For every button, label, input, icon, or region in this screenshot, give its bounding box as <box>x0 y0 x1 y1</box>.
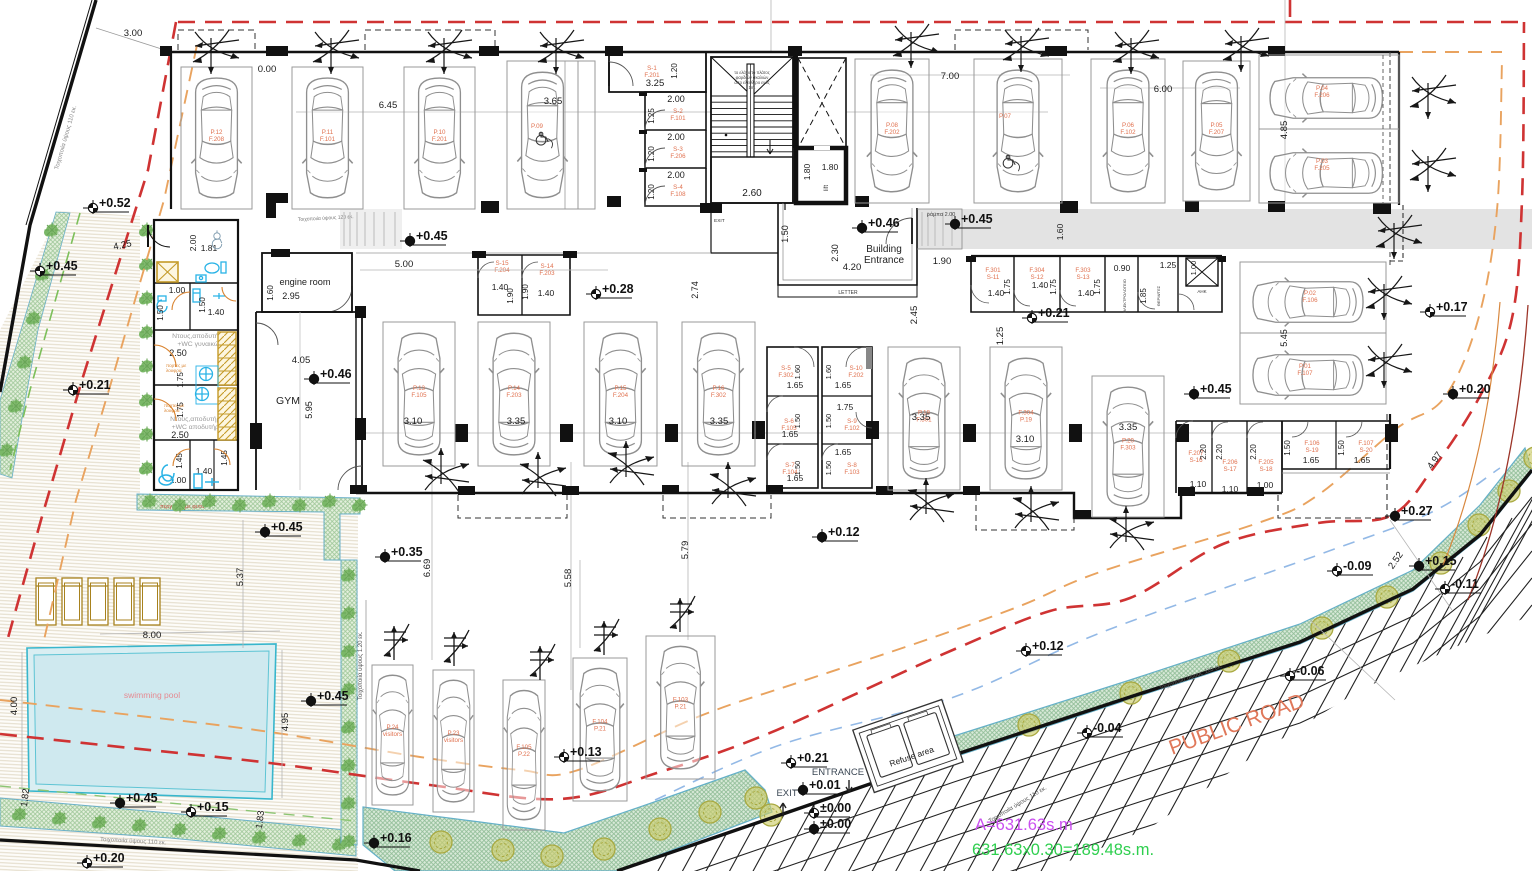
svg-text:P.10: P.10 <box>434 129 446 136</box>
svg-text:-0.06: -0.06 <box>1296 664 1325 678</box>
svg-text:1.25: 1.25 <box>995 327 1006 346</box>
svg-text:1.10: 1.10 <box>1190 479 1207 489</box>
svg-text:S-1: S-1 <box>647 65 657 72</box>
svg-text:1.45: 1.45 <box>220 450 229 466</box>
svg-text:S-10: S-10 <box>849 365 863 372</box>
svg-text:ΗΛΕΚΤΡΟΛΟΓΕΙΟ: ΗΛΕΚΤΡΟΛΟΓΕΙΟ <box>1122 279 1127 313</box>
svg-text:P.21: P.21 <box>594 726 606 733</box>
svg-text:1.50: 1.50 <box>1337 440 1346 456</box>
svg-text:F.106: F.106 <box>1304 440 1320 447</box>
svg-text:S-4: S-4 <box>673 184 683 191</box>
svg-text:F.103: F.103 <box>673 697 689 704</box>
svg-text:1.50: 1.50 <box>780 225 790 243</box>
svg-text:engine room: engine room <box>279 277 330 287</box>
svg-text:+0.01: +0.01 <box>809 778 841 792</box>
svg-text:1.75: 1.75 <box>1093 279 1102 295</box>
svg-text:S-9: S-9 <box>847 418 857 425</box>
svg-text:2.00: 2.00 <box>667 132 685 142</box>
svg-text:F.205: F.205 <box>1314 165 1330 172</box>
svg-text:631.63x0.30=189.48s.m.: 631.63x0.30=189.48s.m. <box>972 841 1154 859</box>
svg-text:2.50: 2.50 <box>169 348 187 358</box>
svg-text:5.95: 5.95 <box>304 401 314 419</box>
svg-text:P.04: P.04 <box>1316 85 1328 92</box>
svg-text:6.69: 6.69 <box>422 559 433 578</box>
svg-text:2.45: 2.45 <box>909 306 920 325</box>
svg-text:+0.15: +0.15 <box>197 800 229 814</box>
svg-text:λουφρα: λουφρα <box>166 368 182 373</box>
svg-text:0.90: 0.90 <box>1114 263 1131 273</box>
svg-text:±0.00: ±0.00 <box>820 801 851 815</box>
svg-text:+0.21: +0.21 <box>1038 306 1070 320</box>
svg-text:2.00: 2.00 <box>188 234 198 251</box>
svg-text:3.10: 3.10 <box>1016 434 1035 445</box>
svg-text:P.16: P.16 <box>713 385 725 392</box>
svg-text:S-5: S-5 <box>781 365 791 372</box>
svg-text:1.65: 1.65 <box>787 380 804 390</box>
svg-text:+0.28: +0.28 <box>602 282 634 296</box>
svg-text:2.20: 2.20 <box>1199 444 1208 460</box>
svg-text:+0.45: +0.45 <box>271 520 303 534</box>
svg-text:2.00: 2.00 <box>667 94 685 104</box>
svg-text:P.15: P.15 <box>615 385 627 392</box>
svg-text:P.12: P.12 <box>211 129 223 136</box>
svg-text:5.45: 5.45 <box>1279 329 1289 347</box>
svg-text:swimming pool: swimming pool <box>124 690 180 700</box>
svg-text:lift: lift <box>824 185 830 191</box>
svg-text:-0.09: -0.09 <box>1343 559 1372 573</box>
svg-text:AHK: AHK <box>1197 289 1206 294</box>
svg-text:F.105: F.105 <box>411 392 427 399</box>
svg-text:ράμπα 2.00: ράμπα 2.00 <box>927 211 956 218</box>
svg-text:+0.46: +0.46 <box>868 216 900 230</box>
svg-text:F.301: F.301 <box>985 267 1001 274</box>
svg-text:1.50: 1.50 <box>824 414 833 429</box>
svg-text:S-13: S-13 <box>1076 274 1090 281</box>
svg-text:5.00: 5.00 <box>395 259 414 270</box>
svg-text:P.03: P.03 <box>1316 158 1328 165</box>
svg-text:F.106: F.106 <box>1302 297 1318 304</box>
svg-text:EXIT: EXIT <box>714 218 725 224</box>
svg-text:P.24: P.24 <box>387 724 399 731</box>
svg-text:1.60: 1.60 <box>266 285 275 301</box>
svg-text:F.107: F.107 <box>1358 440 1374 447</box>
svg-text:-0.11: -0.11 <box>1451 577 1479 591</box>
svg-text:+0.45: +0.45 <box>126 791 158 805</box>
svg-text:3.65: 3.65 <box>544 96 563 107</box>
svg-text:P.08: P.08 <box>886 122 898 129</box>
svg-text:+WC γυναικών: +WC γυναικών <box>177 340 223 348</box>
svg-text:+0.12: +0.12 <box>1032 639 1064 653</box>
svg-text:P.01: P.01 <box>1299 363 1311 370</box>
svg-text:F.302: F.302 <box>778 372 794 379</box>
svg-text:+0.15: +0.15 <box>1425 554 1457 568</box>
svg-text:1.40: 1.40 <box>208 307 225 317</box>
svg-text:+0.20: +0.20 <box>1459 382 1491 396</box>
svg-text:1.65: 1.65 <box>835 447 852 457</box>
svg-text:1m.: 1m. <box>749 85 756 90</box>
svg-text:S-8: S-8 <box>847 462 857 469</box>
svg-text:+0.13: +0.13 <box>570 745 602 759</box>
svg-text:F.304: F.304 <box>1029 267 1045 274</box>
svg-text:1.60: 1.60 <box>1055 223 1065 240</box>
svg-text:1.75: 1.75 <box>176 372 185 388</box>
svg-text:S-14: S-14 <box>540 263 554 270</box>
svg-text:1.00: 1.00 <box>1189 261 1198 276</box>
svg-text:F.108: F.108 <box>670 191 686 198</box>
svg-text:1.50: 1.50 <box>824 461 833 476</box>
svg-text:F.207: F.207 <box>1209 129 1225 136</box>
svg-text:5.58: 5.58 <box>563 569 574 588</box>
svg-text:0.00: 0.00 <box>258 64 277 75</box>
svg-text:F.103: F.103 <box>844 469 860 476</box>
svg-text:1.50: 1.50 <box>198 297 207 313</box>
svg-text:F.202: F.202 <box>884 129 900 136</box>
svg-text:F.201: F.201 <box>432 136 448 143</box>
svg-text:F.204: F.204 <box>494 267 510 274</box>
svg-text:-0.04: -0.04 <box>1093 721 1122 735</box>
svg-text:3.35: 3.35 <box>1119 422 1138 433</box>
svg-text:P.22: P.22 <box>518 751 530 758</box>
svg-text:visitors: visitors <box>383 731 402 738</box>
svg-text:4.95: 4.95 <box>280 713 291 732</box>
svg-text:1.90: 1.90 <box>521 284 530 300</box>
svg-text:S-2: S-2 <box>673 108 683 115</box>
svg-text:±0.00: ±0.00 <box>820 817 851 831</box>
svg-text:+0.46: +0.46 <box>320 367 352 381</box>
svg-text:1.65: 1.65 <box>1303 455 1320 465</box>
svg-text:6.45: 6.45 <box>379 100 398 111</box>
svg-text:S-15: S-15 <box>495 260 509 267</box>
svg-text:Entrance: Entrance <box>864 255 904 266</box>
svg-text:1.00: 1.00 <box>1257 480 1274 490</box>
svg-text:P.20: P.20 <box>1122 438 1134 445</box>
svg-text:F.206: F.206 <box>1222 459 1238 466</box>
svg-text:visitors: visitors <box>444 737 463 744</box>
svg-text:P.21: P.21 <box>675 704 687 711</box>
svg-text:ΘΕΡΜ/ΤΕΣ: ΘΕΡΜ/ΤΕΣ <box>1156 285 1161 306</box>
svg-text:1.20: 1.20 <box>670 63 679 79</box>
svg-text:F.206: F.206 <box>670 153 686 160</box>
svg-text:F.104: F.104 <box>592 719 608 726</box>
svg-text:1.65: 1.65 <box>782 429 799 439</box>
svg-text:1.75: 1.75 <box>1049 279 1058 295</box>
svg-text:+0.45: +0.45 <box>961 212 993 226</box>
svg-text:3.10: 3.10 <box>404 416 423 427</box>
svg-text:2.20: 2.20 <box>1215 444 1224 460</box>
svg-text:1.60: 1.60 <box>824 365 833 380</box>
svg-text:2.30: 2.30 <box>830 244 840 262</box>
svg-text:LETTER: LETTER <box>838 290 858 296</box>
svg-text:3.35: 3.35 <box>710 416 729 427</box>
svg-text:4.00: 4.00 <box>9 697 20 716</box>
svg-text:F.102: F.102 <box>1120 129 1136 136</box>
svg-text:F.206: F.206 <box>1314 92 1330 99</box>
svg-text:Τοιχοποιία ύψους 1.20 εκ.: Τοιχοποιία ύψους 1.20 εκ. <box>358 631 364 700</box>
svg-text:3.35: 3.35 <box>507 416 526 427</box>
svg-text:+0.45: +0.45 <box>317 689 349 703</box>
svg-text:F.204: F.204 <box>613 392 629 399</box>
svg-text:5.79: 5.79 <box>680 541 691 560</box>
svg-text:F.202: F.202 <box>848 372 864 379</box>
svg-text:2.00: 2.00 <box>667 170 685 180</box>
svg-text:P.11: P.11 <box>322 129 334 136</box>
svg-text:P.07: P.07 <box>999 113 1011 120</box>
svg-text:F.101: F.101 <box>670 115 686 122</box>
svg-text:1.83: 1.83 <box>254 810 267 830</box>
svg-text:S-19: S-19 <box>1305 447 1319 454</box>
svg-text:8.00: 8.00 <box>143 630 162 641</box>
svg-text:F.102: F.102 <box>844 425 860 432</box>
svg-text:1.25: 1.25 <box>1160 260 1177 270</box>
svg-text:1.40: 1.40 <box>538 288 555 298</box>
svg-text:1.10: 1.10 <box>1222 484 1239 494</box>
svg-text:+0.12: +0.12 <box>828 525 860 539</box>
svg-text:F.105: F.105 <box>516 744 532 751</box>
svg-text:+0.21: +0.21 <box>79 378 111 392</box>
svg-text:1.90: 1.90 <box>506 288 515 304</box>
svg-text:1.40: 1.40 <box>1032 280 1049 290</box>
svg-text:1.90: 1.90 <box>933 256 952 267</box>
svg-text:3.35: 3.35 <box>912 412 931 423</box>
svg-text:S-18: S-18 <box>1259 466 1273 473</box>
svg-text:+0.45: +0.45 <box>46 259 78 273</box>
svg-text:S-20: S-20 <box>1359 447 1373 454</box>
svg-text:4.85: 4.85 <box>1279 121 1290 140</box>
svg-text:3.00: 3.00 <box>124 28 143 39</box>
svg-text:1.50: 1.50 <box>793 414 802 429</box>
svg-text:1.00: 1.00 <box>170 475 187 485</box>
svg-text:F.203: F.203 <box>539 270 555 277</box>
svg-text:P.02: P.02 <box>1304 290 1316 297</box>
svg-text:5.37: 5.37 <box>235 568 246 587</box>
svg-text:2.60: 2.60 <box>742 188 762 199</box>
svg-text:6.00: 6.00 <box>1154 84 1173 95</box>
svg-text:3.10: 3.10 <box>609 416 628 427</box>
svg-text:2.50: 2.50 <box>171 430 189 440</box>
svg-text:P.23: P.23 <box>448 730 460 737</box>
svg-text:GYM: GYM <box>276 395 300 407</box>
svg-text:S-3: S-3 <box>673 146 683 153</box>
svg-text:F.303: F.303 <box>1075 267 1091 274</box>
svg-text:2.95: 2.95 <box>282 291 300 301</box>
svg-text:7.00: 7.00 <box>941 71 960 82</box>
svg-text:Building: Building <box>866 244 902 255</box>
svg-text:3.25: 3.25 <box>646 78 665 89</box>
svg-text:2.20: 2.20 <box>1249 444 1258 460</box>
svg-text:4.20: 4.20 <box>843 262 862 273</box>
svg-text:P.09: P.09 <box>531 123 543 130</box>
svg-text:S-17: S-17 <box>1223 466 1237 473</box>
svg-text:+0.45: +0.45 <box>1200 382 1232 396</box>
svg-text:F.107: F.107 <box>1297 370 1313 377</box>
svg-text:2.74: 2.74 <box>690 281 700 299</box>
svg-text:1.50: 1.50 <box>793 461 802 476</box>
svg-text:1.80: 1.80 <box>822 162 839 172</box>
svg-text:P.14: P.14 <box>508 385 520 392</box>
svg-text:P.19: P.19 <box>1020 417 1032 424</box>
svg-text:1.75: 1.75 <box>837 402 854 412</box>
svg-text:ENTRANCE: ENTRANCE <box>812 767 864 778</box>
svg-text:4.05: 4.05 <box>292 355 311 366</box>
svg-text:F.208: F.208 <box>209 136 225 143</box>
svg-text:F.304: F.304 <box>1018 410 1034 417</box>
svg-text:F.303: F.303 <box>1120 445 1136 452</box>
svg-text:EXIT: EXIT <box>776 788 797 799</box>
svg-text:+0.35: +0.35 <box>391 545 423 559</box>
svg-text:F.203: F.203 <box>506 392 522 399</box>
svg-text:+0.27: +0.27 <box>1401 504 1433 518</box>
svg-text:P.05: P.05 <box>1211 122 1223 129</box>
svg-text:P.06: P.06 <box>1122 122 1134 129</box>
svg-text:1.80: 1.80 <box>802 163 812 180</box>
svg-text:1.50: 1.50 <box>156 305 165 321</box>
svg-text:+0.45: +0.45 <box>416 229 448 243</box>
svg-text:+0.16: +0.16 <box>380 831 412 845</box>
svg-text:+0.20: +0.20 <box>93 851 125 865</box>
svg-text:1.75: 1.75 <box>1003 279 1012 295</box>
svg-text:F.101: F.101 <box>320 136 336 143</box>
svg-text:S-11: S-11 <box>987 274 1000 281</box>
svg-text:1.65: 1.65 <box>1354 455 1371 465</box>
svg-text:1.60: 1.60 <box>793 365 802 380</box>
svg-text:1.82: 1.82 <box>19 788 32 808</box>
svg-text:+0.17: +0.17 <box>1436 300 1468 314</box>
svg-text:P.13: P.13 <box>413 385 425 392</box>
svg-text:F.205: F.205 <box>1258 459 1274 466</box>
svg-text:F.302: F.302 <box>711 392 727 399</box>
svg-text:+0.52: +0.52 <box>99 196 131 210</box>
svg-text:+0.21: +0.21 <box>797 751 829 765</box>
svg-text:1.65: 1.65 <box>835 380 852 390</box>
svg-text:1.50: 1.50 <box>1283 440 1292 456</box>
